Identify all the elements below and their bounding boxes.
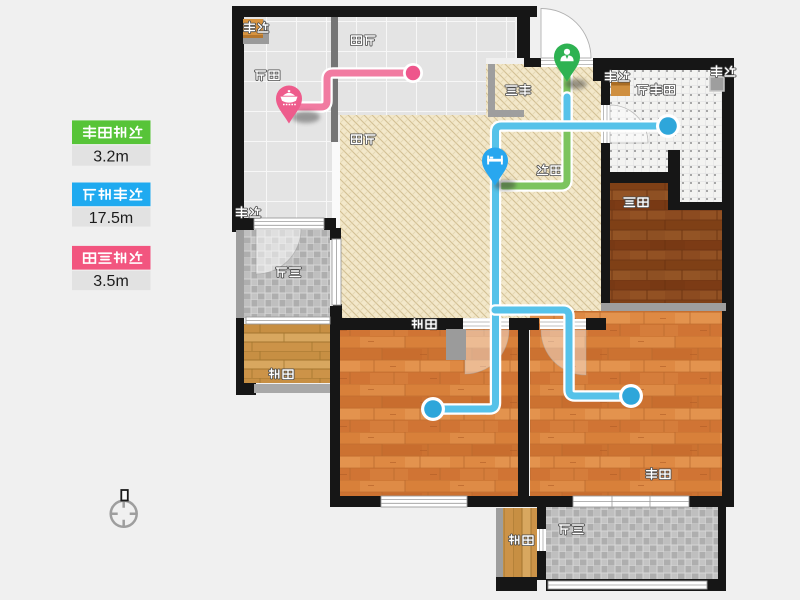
svg-text:17.5m: 17.5m	[89, 210, 133, 227]
svg-text:3.2m: 3.2m	[93, 149, 129, 166]
svg-text:3.5m: 3.5m	[93, 273, 129, 290]
